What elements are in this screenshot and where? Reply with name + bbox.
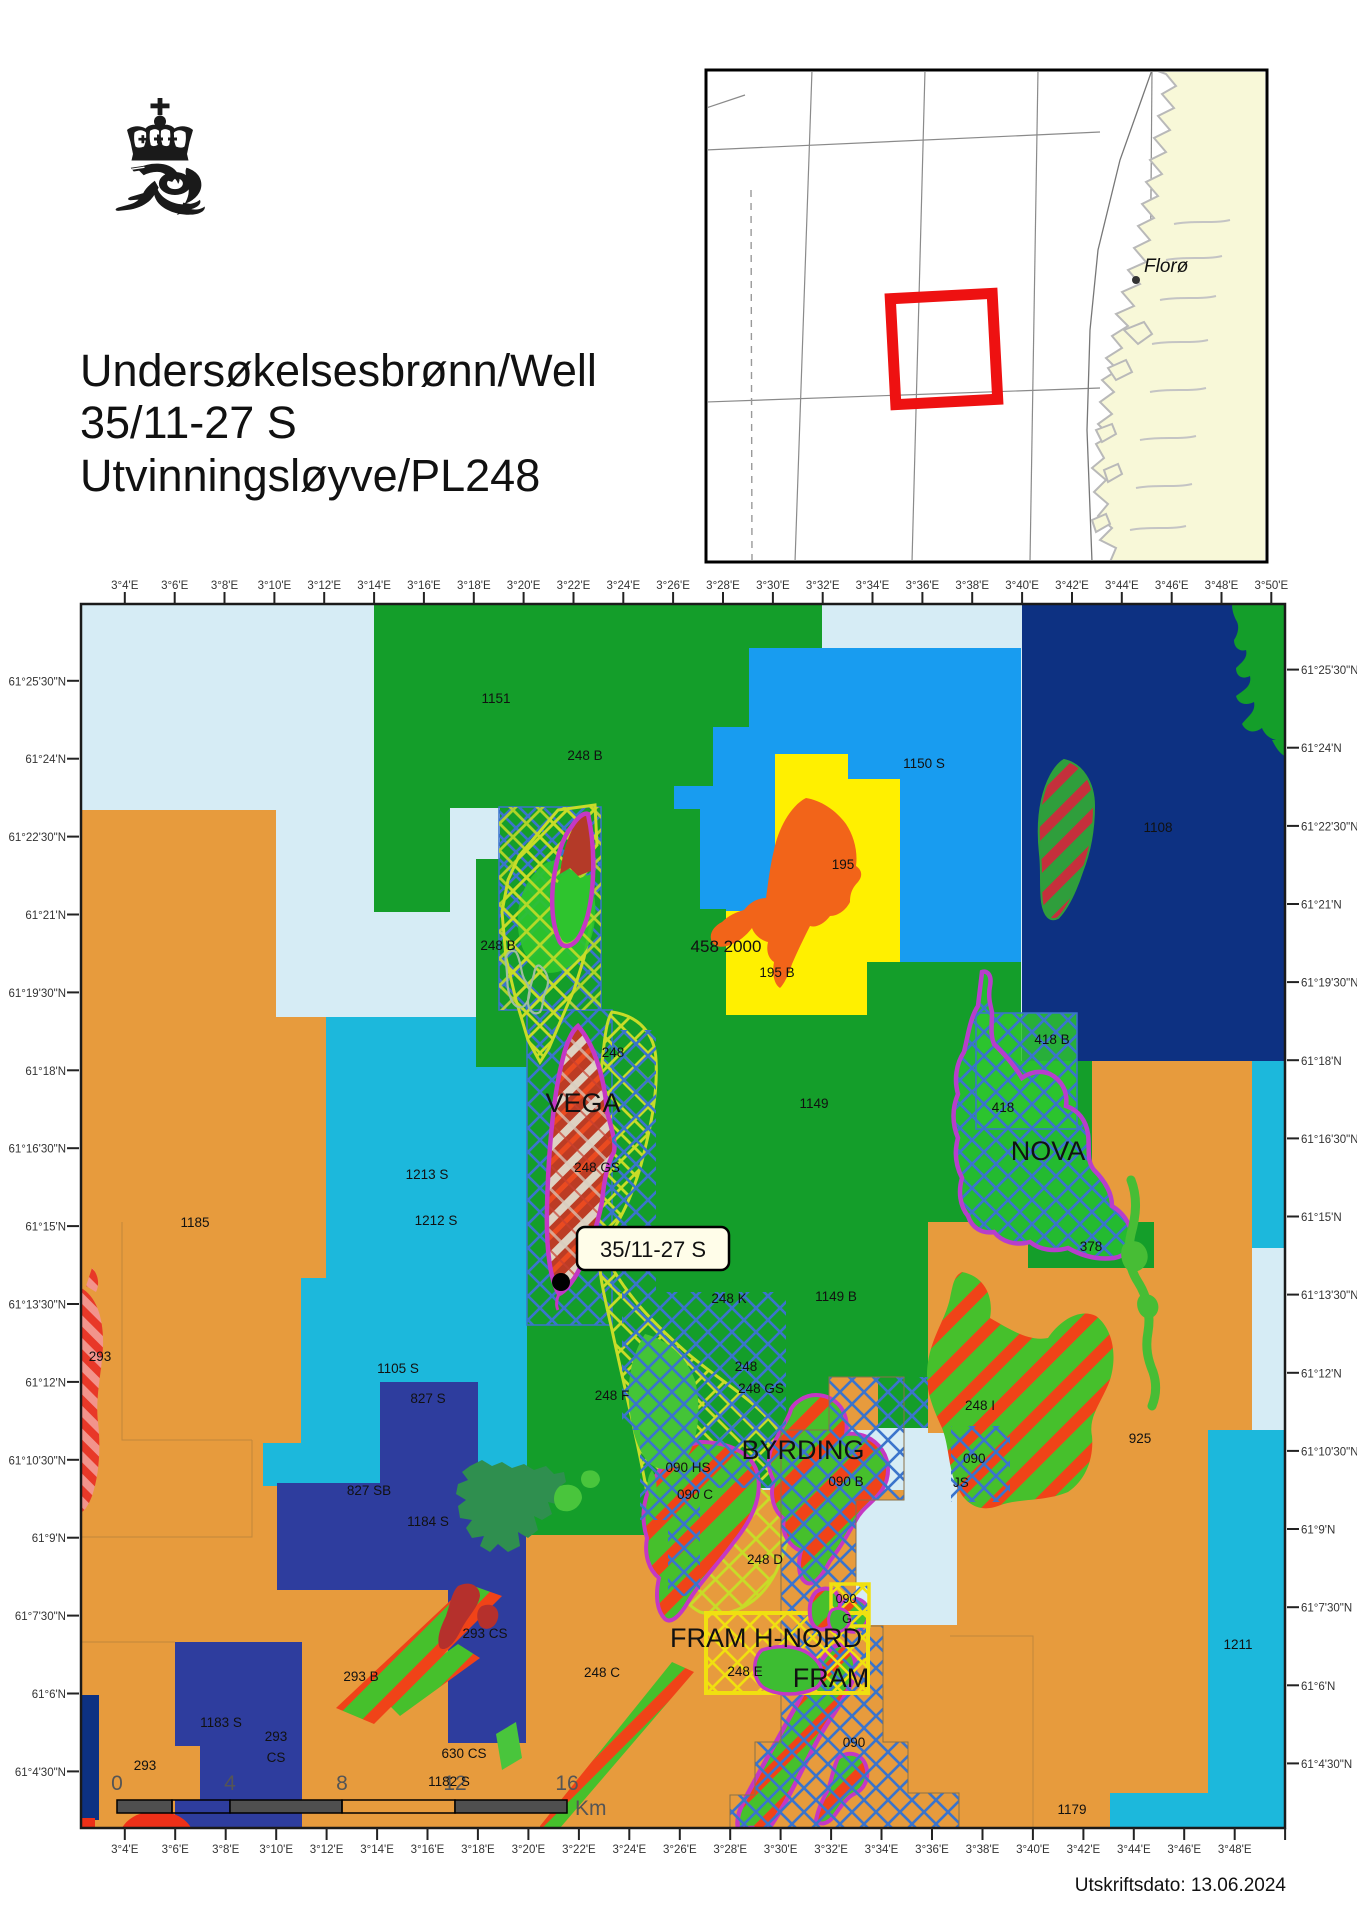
svg-text:NOVA: NOVA	[1011, 1136, 1086, 1166]
svg-text:61°16'30"N: 61°16'30"N	[1301, 1134, 1357, 1146]
svg-text:CS: CS	[267, 1750, 286, 1765]
svg-text:3°36'E: 3°36'E	[906, 580, 940, 592]
svg-text:3°38'E: 3°38'E	[955, 580, 989, 592]
svg-text:61°21'N: 61°21'N	[25, 910, 66, 922]
svg-text:925: 925	[1129, 1431, 1152, 1446]
svg-text:3°24'E: 3°24'E	[606, 580, 640, 592]
svg-text:61°10'30"N: 61°10'30"N	[1301, 1446, 1357, 1458]
svg-text:3°20'E: 3°20'E	[507, 580, 541, 592]
svg-text:VEGA: VEGA	[545, 1088, 620, 1118]
svg-text:1105 S: 1105 S	[377, 1361, 419, 1376]
svg-text:3°38'E: 3°38'E	[966, 1844, 1000, 1856]
svg-text:JS: JS	[953, 1475, 969, 1490]
svg-text:3°44'E: 3°44'E	[1117, 1844, 1151, 1856]
svg-text:Utvinningsløyve/PL248: Utvinningsløyve/PL248	[80, 450, 540, 501]
svg-text:293 CS: 293 CS	[462, 1626, 507, 1641]
svg-text:3°14'E: 3°14'E	[357, 580, 391, 592]
svg-text:195: 195	[832, 857, 855, 872]
svg-text:3°34'E: 3°34'E	[865, 1844, 899, 1856]
svg-text:248: 248	[735, 1359, 758, 1374]
svg-text:090: 090	[836, 1592, 857, 1606]
svg-text:248: 248	[602, 1045, 625, 1060]
svg-text:1183 S: 1183 S	[200, 1715, 242, 1730]
svg-text:3°46'E: 3°46'E	[1167, 1844, 1201, 1856]
svg-text:61°6'N: 61°6'N	[32, 1689, 66, 1701]
svg-text:3°4'E: 3°4'E	[111, 580, 139, 592]
svg-text:3°48'E: 3°48'E	[1218, 1844, 1252, 1856]
svg-text:61°19'30"N: 61°19'30"N	[1301, 978, 1357, 990]
svg-text:61°7'30"N: 61°7'30"N	[1301, 1603, 1352, 1615]
svg-text:1149: 1149	[799, 1096, 828, 1111]
svg-text:61°25'30"N: 61°25'30"N	[1301, 665, 1357, 677]
svg-text:Florø: Florø	[1144, 256, 1189, 277]
svg-text:0: 0	[111, 1772, 123, 1795]
svg-text:248 GS: 248 GS	[574, 1160, 620, 1175]
svg-text:3°46'E: 3°46'E	[1155, 580, 1189, 592]
svg-text:1150 S: 1150 S	[903, 756, 945, 771]
svg-text:1211: 1211	[1223, 1637, 1252, 1652]
svg-text:3°30'E: 3°30'E	[764, 1844, 798, 1856]
svg-text:293: 293	[265, 1729, 288, 1744]
svg-text:090 C: 090 C	[677, 1487, 713, 1502]
svg-text:248 B: 248 B	[567, 748, 602, 763]
svg-text:3°6'E: 3°6'E	[161, 580, 189, 592]
svg-text:3°40'E: 3°40'E	[1016, 1844, 1050, 1856]
svg-text:090: 090	[963, 1451, 986, 1466]
svg-text:61°6'N: 61°6'N	[1301, 1681, 1335, 1693]
svg-text:3°40'E: 3°40'E	[1005, 580, 1039, 592]
svg-text:35/11-27 S: 35/11-27 S	[600, 1237, 706, 1262]
svg-text:3°12'E: 3°12'E	[307, 580, 341, 592]
svg-text:61°15'N: 61°15'N	[25, 1222, 66, 1234]
svg-text:3°32'E: 3°32'E	[806, 580, 840, 592]
svg-text:3°10'E: 3°10'E	[259, 1844, 293, 1856]
svg-text:3°32'E: 3°32'E	[814, 1844, 848, 1856]
svg-text:1149 B: 1149 B	[815, 1289, 857, 1304]
svg-text:3°20'E: 3°20'E	[512, 1844, 546, 1856]
svg-text:3°4'E: 3°4'E	[111, 1844, 139, 1856]
svg-text:3°30'E: 3°30'E	[756, 580, 790, 592]
svg-text:1108: 1108	[1143, 820, 1172, 835]
svg-text:293: 293	[134, 1758, 157, 1773]
svg-text:61°4'30"N: 61°4'30"N	[1301, 1759, 1352, 1771]
svg-text:1213 S: 1213 S	[406, 1167, 449, 1182]
svg-text:3°22'E: 3°22'E	[562, 1844, 596, 1856]
svg-text:090: 090	[843, 1735, 866, 1750]
svg-text:3°26'E: 3°26'E	[663, 1844, 697, 1856]
svg-text:61°18'N: 61°18'N	[25, 1066, 66, 1078]
svg-text:3°50'E: 3°50'E	[1254, 580, 1288, 592]
svg-text:61°9'N: 61°9'N	[32, 1533, 66, 1545]
svg-text:FRAM: FRAM	[793, 1663, 870, 1693]
svg-text:3°8'E: 3°8'E	[211, 580, 239, 592]
svg-text:61°24'N: 61°24'N	[25, 754, 66, 766]
svg-text:Undersøkelsesbrønn/Well: Undersøkelsesbrønn/Well	[80, 345, 597, 396]
svg-text:3°14'E: 3°14'E	[360, 1844, 394, 1856]
svg-text:3°16'E: 3°16'E	[411, 1844, 445, 1856]
svg-text:4: 4	[224, 1772, 236, 1795]
svg-text:1179: 1179	[1057, 1802, 1086, 1817]
svg-text:3°42'E: 3°42'E	[1067, 1844, 1101, 1856]
svg-text:3°24'E: 3°24'E	[612, 1844, 646, 1856]
svg-text:FRAM H-NORD: FRAM H-NORD	[670, 1623, 862, 1653]
svg-text:827 SB: 827 SB	[347, 1483, 391, 1498]
svg-text:16: 16	[555, 1772, 578, 1795]
svg-text:293: 293	[89, 1349, 112, 1364]
svg-text:3°42'E: 3°42'E	[1055, 580, 1089, 592]
svg-text:090 B: 090 B	[828, 1474, 863, 1489]
svg-text:1184 S: 1184 S	[407, 1514, 449, 1529]
svg-text:Utskriftsdato: 13.06.2024: Utskriftsdato: 13.06.2024	[1075, 1875, 1287, 1896]
svg-text:3°8'E: 3°8'E	[212, 1844, 240, 1856]
svg-text:61°18'N: 61°18'N	[1301, 1056, 1342, 1068]
svg-text:61°24'N: 61°24'N	[1301, 743, 1342, 755]
svg-text:1212 S: 1212 S	[415, 1213, 458, 1228]
svg-text:61°12'N: 61°12'N	[25, 1377, 66, 1389]
svg-text:248 F: 248 F	[595, 1388, 630, 1403]
svg-text:61°16'30"N: 61°16'30"N	[8, 1144, 66, 1156]
svg-text:248 B: 248 B	[480, 938, 515, 953]
svg-text:418: 418	[992, 1100, 1015, 1115]
svg-text:248 I: 248 I	[965, 1398, 995, 1413]
svg-text:61°22'30"N: 61°22'30"N	[1301, 821, 1357, 833]
svg-text:3°16'E: 3°16'E	[407, 580, 441, 592]
svg-text:61°15'N: 61°15'N	[1301, 1212, 1342, 1224]
svg-text:3°26'E: 3°26'E	[656, 580, 690, 592]
svg-text:61°7'30"N: 61°7'30"N	[15, 1611, 66, 1623]
svg-text:248 D: 248 D	[747, 1552, 783, 1567]
svg-text:35/11-27 S: 35/11-27 S	[80, 397, 297, 448]
svg-text:3°28'E: 3°28'E	[713, 1844, 747, 1856]
svg-text:3°6'E: 3°6'E	[162, 1844, 190, 1856]
svg-text:BYRDING: BYRDING	[741, 1435, 864, 1465]
svg-text:3°34'E: 3°34'E	[856, 580, 890, 592]
svg-text:293 B: 293 B	[343, 1669, 378, 1684]
svg-text:3°18'E: 3°18'E	[461, 1844, 495, 1856]
svg-text:090 HS: 090 HS	[665, 1460, 710, 1475]
svg-text:1185: 1185	[180, 1215, 209, 1230]
svg-text:61°19'30"N: 61°19'30"N	[8, 988, 66, 1000]
svg-text:195 B: 195 B	[759, 965, 794, 980]
svg-text:61°21'N: 61°21'N	[1301, 900, 1342, 912]
svg-text:458 2000: 458 2000	[691, 937, 762, 956]
svg-text:1182 S: 1182 S	[428, 1774, 470, 1789]
svg-text:61°9'N: 61°9'N	[1301, 1525, 1335, 1537]
svg-text:248 C: 248 C	[584, 1665, 620, 1680]
svg-text:61°13'30"N: 61°13'30"N	[1301, 1290, 1357, 1302]
svg-text:3°28'E: 3°28'E	[706, 580, 740, 592]
svg-text:3°10'E: 3°10'E	[258, 580, 292, 592]
svg-text:248 E: 248 E	[727, 1664, 762, 1679]
svg-text:248 GS: 248 GS	[738, 1381, 784, 1396]
svg-text:3°36'E: 3°36'E	[915, 1844, 949, 1856]
svg-text:61°25'30"N: 61°25'30"N	[8, 676, 66, 688]
svg-text:3°18'E: 3°18'E	[457, 580, 491, 592]
svg-text:3°12'E: 3°12'E	[310, 1844, 344, 1856]
svg-text:61°4'30"N: 61°4'30"N	[15, 1767, 66, 1779]
svg-text:61°13'30"N: 61°13'30"N	[8, 1300, 66, 1312]
svg-text:3°44'E: 3°44'E	[1105, 580, 1139, 592]
svg-text:8: 8	[336, 1772, 348, 1795]
svg-text:1151: 1151	[481, 691, 510, 706]
svg-text:Km: Km	[575, 1797, 607, 1820]
svg-text:378: 378	[1080, 1239, 1103, 1254]
svg-text:418 B: 418 B	[1034, 1032, 1069, 1047]
svg-text:3°48'E: 3°48'E	[1205, 580, 1239, 592]
svg-text:61°22'30"N: 61°22'30"N	[8, 832, 66, 844]
svg-text:248 K: 248 K	[711, 1291, 746, 1306]
svg-text:3°22'E: 3°22'E	[557, 580, 591, 592]
svg-text:61°10'30"N: 61°10'30"N	[8, 1455, 66, 1467]
svg-text:827 S: 827 S	[410, 1391, 445, 1406]
svg-text:630 CS: 630 CS	[441, 1746, 486, 1761]
svg-text:61°12'N: 61°12'N	[1301, 1368, 1342, 1380]
